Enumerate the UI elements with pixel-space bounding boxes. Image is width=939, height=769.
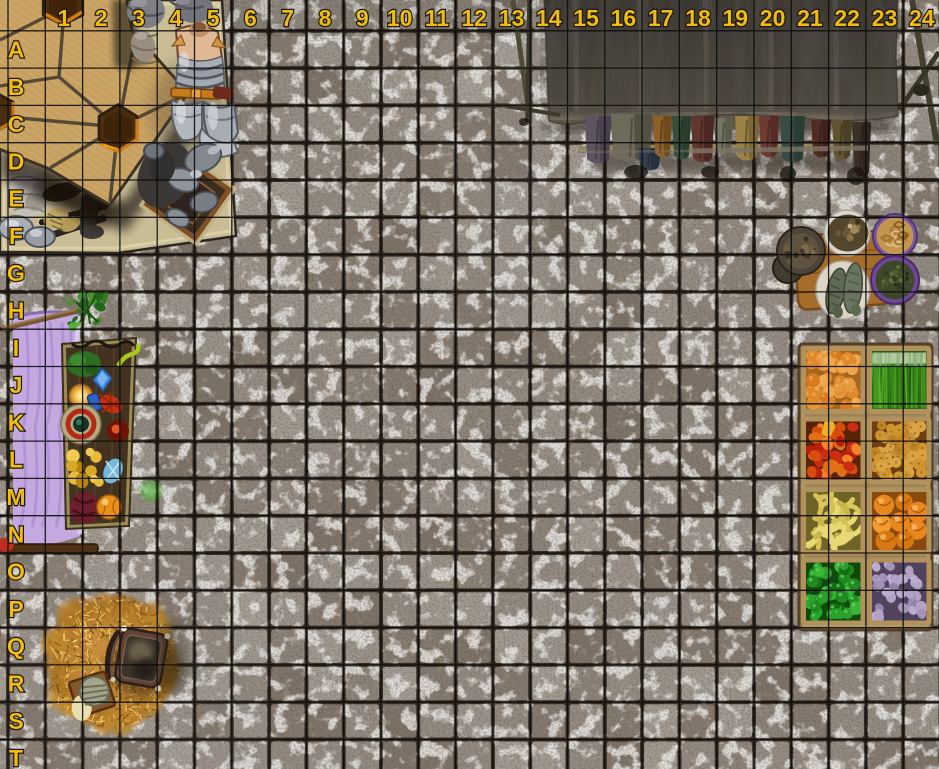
svg-text:10: 10 [387,5,413,31]
svg-text:22: 22 [834,5,860,31]
svg-text:2: 2 [95,5,108,31]
svg-text:S: S [8,708,23,734]
svg-text:F: F [9,223,23,249]
svg-text:D: D [8,148,25,174]
svg-text:7: 7 [281,5,294,31]
svg-text:20: 20 [760,5,786,31]
svg-text:17: 17 [648,5,674,31]
svg-text:H: H [8,298,25,324]
svg-text:6: 6 [244,5,257,31]
svg-text:11: 11 [425,5,450,31]
svg-text:14: 14 [536,5,562,31]
svg-text:R: R [8,671,25,697]
svg-text:19: 19 [723,5,749,31]
svg-text:Q: Q [7,633,25,659]
svg-text:J: J [10,372,23,398]
svg-text:1: 1 [58,5,71,31]
svg-text:T: T [9,745,23,769]
svg-text:P: P [8,596,23,622]
svg-text:L: L [9,447,23,473]
svg-text:B: B [8,74,25,100]
svg-text:A: A [8,37,25,63]
svg-text:18: 18 [685,5,711,31]
svg-text:3: 3 [132,5,145,31]
svg-text:13: 13 [499,5,525,31]
svg-text:21: 21 [797,5,823,31]
svg-text:8: 8 [319,5,332,31]
svg-text:24: 24 [909,5,935,31]
svg-text:O: O [7,559,25,585]
svg-text:23: 23 [872,5,898,31]
svg-text:K: K [8,409,25,435]
svg-text:9: 9 [356,5,369,31]
svg-text:5: 5 [207,5,220,31]
svg-text:4: 4 [169,5,182,31]
svg-text:I: I [13,335,19,361]
svg-text:12: 12 [461,5,487,31]
svg-text:N: N [8,521,25,547]
svg-text:M: M [6,484,25,510]
svg-text:E: E [8,186,23,212]
svg-text:16: 16 [611,5,637,31]
svg-text:15: 15 [573,5,599,31]
svg-text:G: G [7,260,25,286]
svg-text:C: C [8,111,25,137]
